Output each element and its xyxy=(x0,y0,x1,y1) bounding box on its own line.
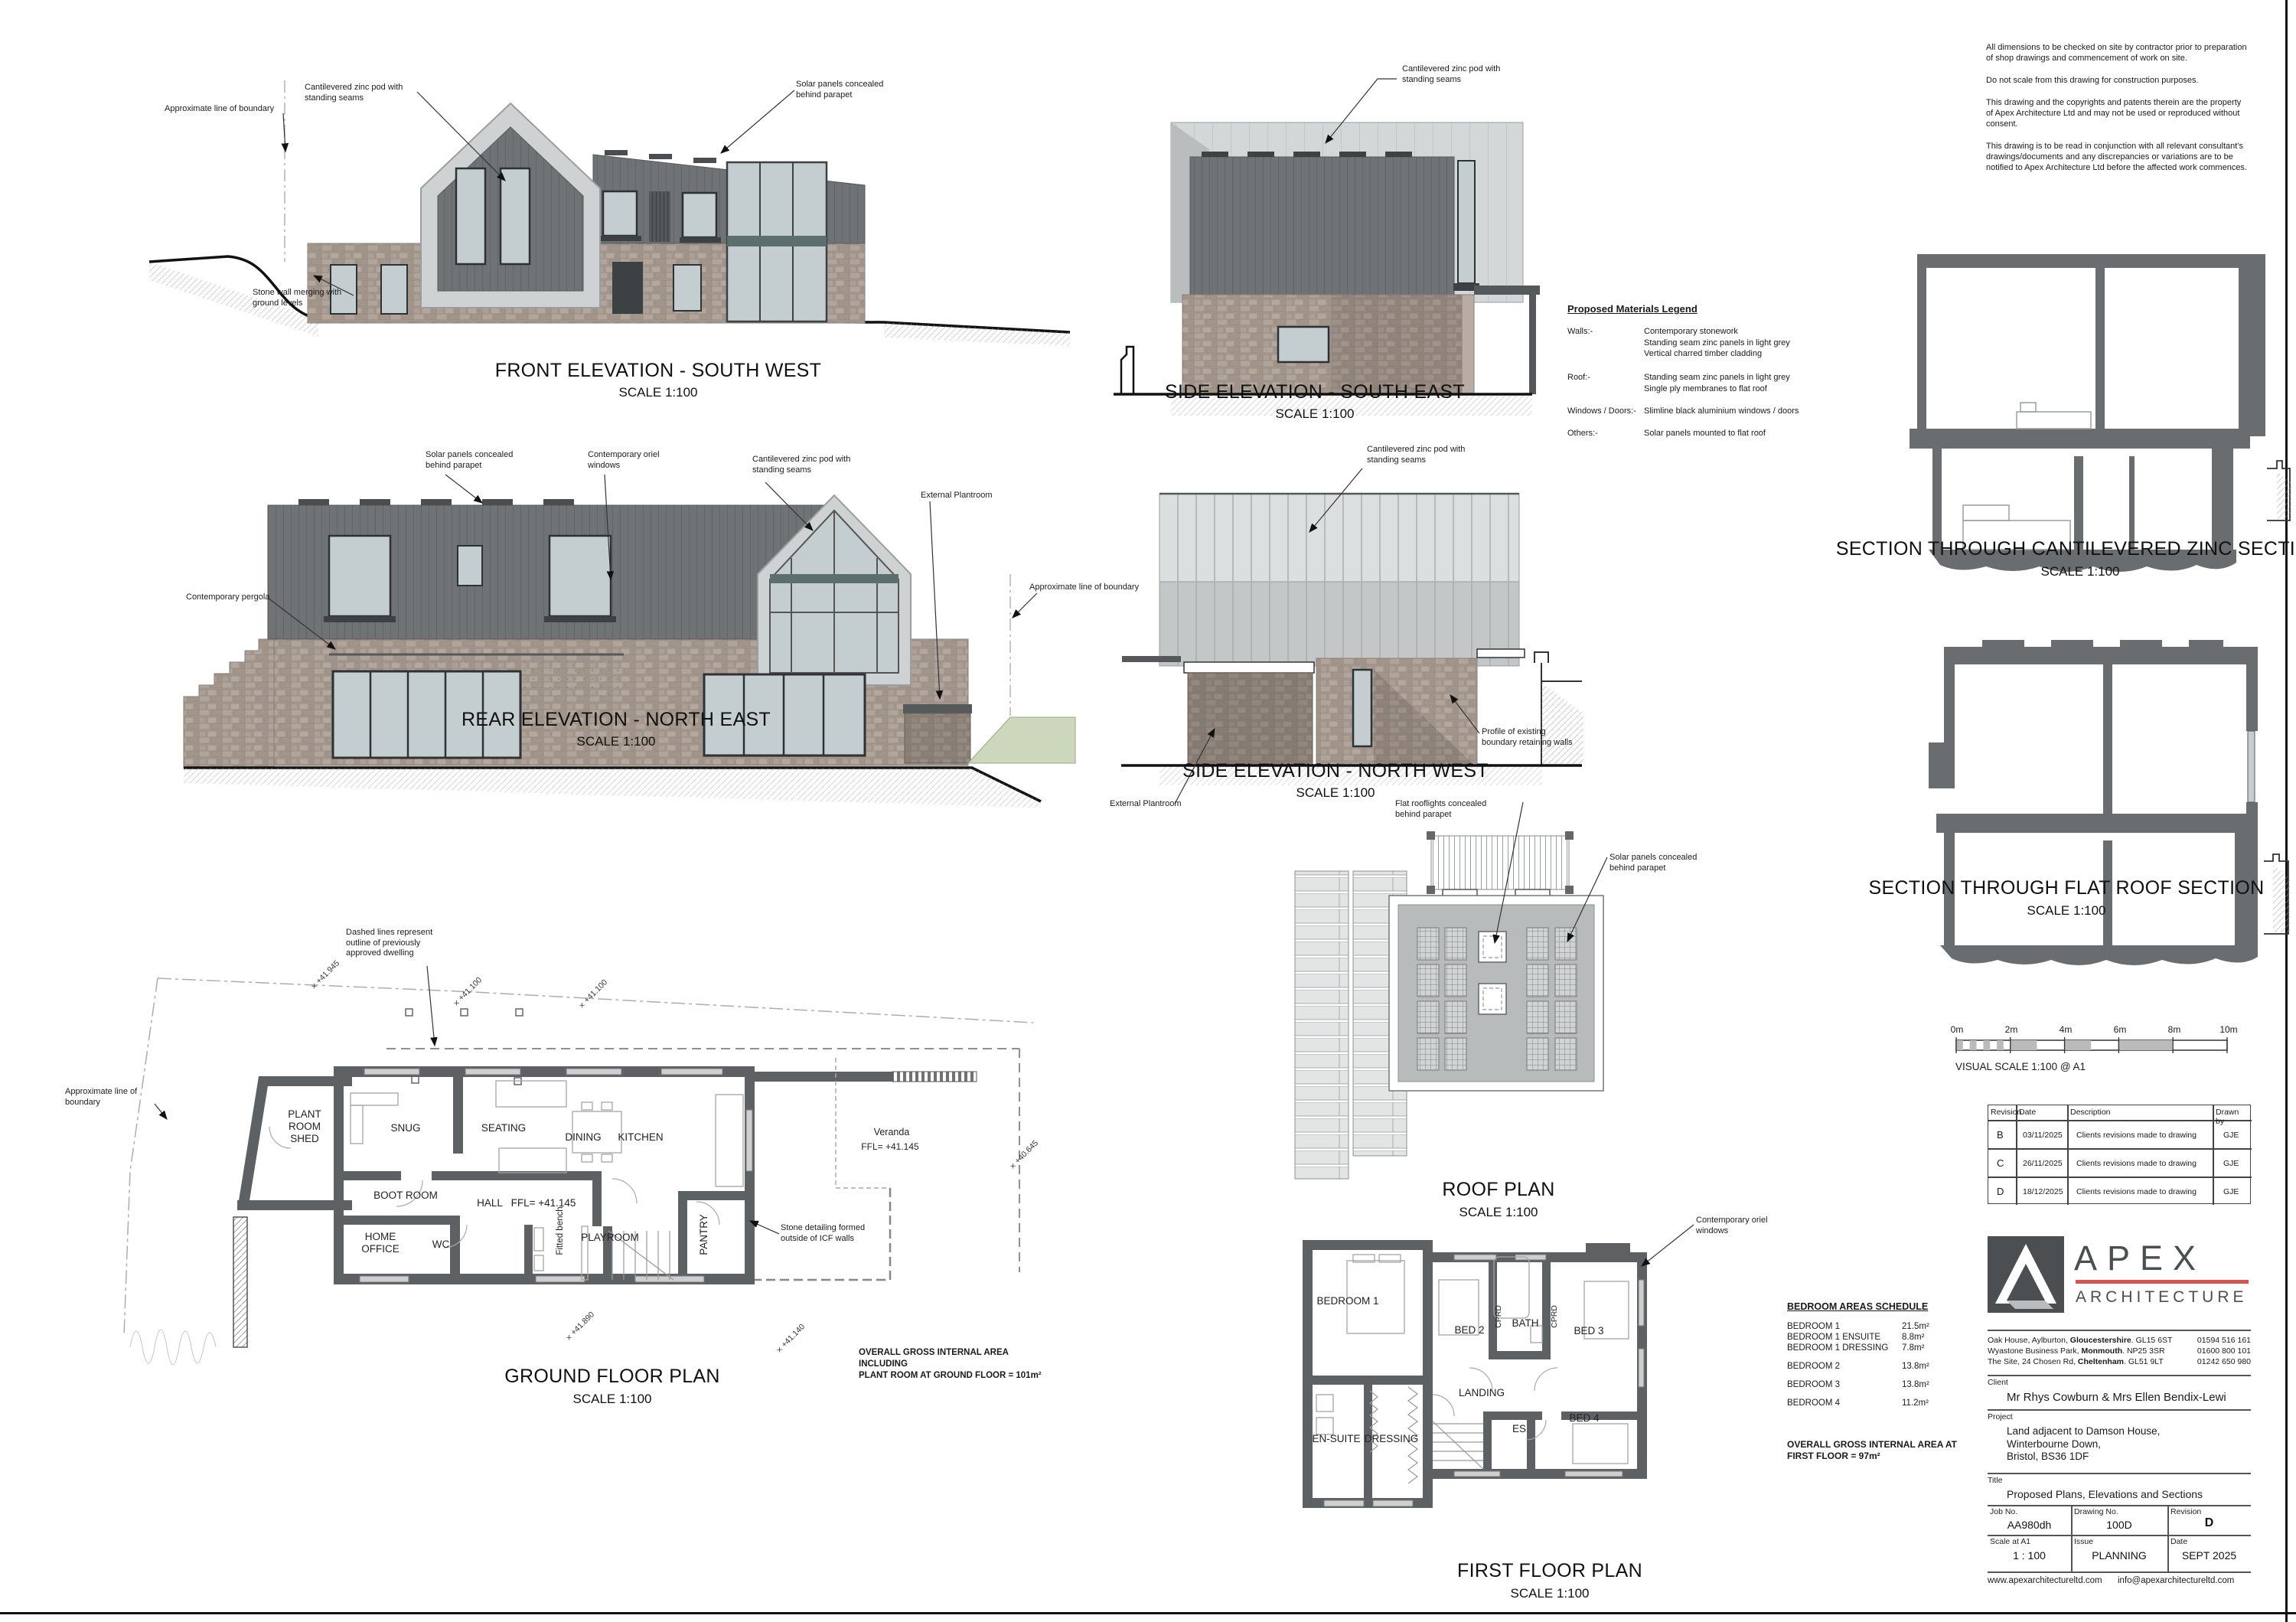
phone-3: 01242 650 980 xyxy=(2174,1357,2251,1368)
note-1: All dimensions to be checked on site by … xyxy=(1986,42,2250,64)
furniture-outlines xyxy=(1963,403,2091,550)
side-nw-title: SIDE ELEVATION - NORTH WEST xyxy=(1068,760,1603,782)
rev-1-by: GJE xyxy=(2221,1157,2241,1170)
vs-tick-5: 10m xyxy=(2213,1024,2244,1035)
sidese-ann-pod: Cantilevered zinc pod with standing seam… xyxy=(1402,64,1500,85)
title-block: APEX ARCHITECTURE Oak House, Aylburton, … xyxy=(1988,1232,2251,1592)
brand-sub-name: ARCHITECTURE xyxy=(2076,1288,2248,1307)
address-line-2: Wyastone Business Park, Monmouth. NP25 3… xyxy=(1988,1346,2165,1357)
section-walls xyxy=(1929,640,2258,948)
existing-roof-strip-1 xyxy=(1295,871,1349,1179)
stairs xyxy=(1433,1421,1483,1469)
front-elevation-scale: SCALE 1:100 xyxy=(390,385,926,400)
ground-slab xyxy=(1940,945,2258,965)
rev-header-by: Drawn by xyxy=(2213,1106,2250,1128)
sched-label-3: BEDROOM 2 xyxy=(1787,1362,1840,1371)
sidenw-ann-retaining: Profile of existing boundary retaining w… xyxy=(1482,727,1573,748)
rear-ann-pergola: Contemporary pergola xyxy=(186,592,269,603)
rear-elevation-title: REAR ELEVATION - NORTH EAST xyxy=(348,709,884,731)
solar-panel-tabs xyxy=(298,499,574,505)
rear-ann-plantroom: External Plantroom xyxy=(921,491,993,501)
room-dressing: DRESSING xyxy=(1349,1433,1433,1445)
roof-plan-drawing xyxy=(1286,781,1615,1194)
rev-1-date: 26/11/2025 xyxy=(2020,1157,2065,1170)
materials-legend: Proposed Materials Legend Walls:- Contem… xyxy=(1567,303,1866,315)
ground-ann-dashed: Dashed lines represent outline of previo… xyxy=(346,928,432,959)
email-text: info@apexarchitectureltd.com xyxy=(2118,1576,2234,1585)
room-snug: SNUG xyxy=(364,1122,448,1134)
rev-0-desc: Clients revisions made to drawing xyxy=(2074,1129,2199,1141)
rear-ann-solar: Solar panels concealed behind parapet xyxy=(426,450,513,471)
rear-elevation-scale: SCALE 1:100 xyxy=(348,734,884,749)
room-bedroom1: BEDROOM 1 xyxy=(1306,1295,1390,1307)
vs-tick-4: 8m xyxy=(2159,1024,2190,1035)
room-wc: WC xyxy=(399,1239,483,1251)
front-ann-solar: Solar panels concealed behind parapet xyxy=(796,80,883,100)
website-text: www.apexarchitectureltd.com xyxy=(1988,1576,2102,1585)
scale-label: Scale at A1 xyxy=(1990,1537,2030,1546)
rev-2-date: 18/12/2025 xyxy=(2020,1186,2066,1198)
ground-ann-boundary: Approximate line of boundary xyxy=(65,1087,157,1108)
front-elevation-drawing xyxy=(138,38,1094,390)
sched-area-5: 11.2m² xyxy=(1902,1398,1929,1408)
section-flat-scale: SCALE 1:100 xyxy=(1799,903,2296,919)
vs-tick-3: 6m xyxy=(2105,1024,2135,1035)
section-zinc-scale: SCALE 1:100 xyxy=(1812,564,2296,579)
drawing-sheet: Cantilevered zinc pod with standing seam… xyxy=(0,0,2296,1622)
general-notes: All dimensions to be checked on site by … xyxy=(1986,42,2250,184)
apex-logo-icon xyxy=(1988,1236,2064,1313)
front-ann-pod: Cantilevered zinc pod with standing seam… xyxy=(305,83,403,103)
external-plantroom xyxy=(903,704,972,763)
section-flat-title: SECTION THROUGH FLAT ROOF SECTION xyxy=(1799,877,2296,899)
ground-plan-scale: SCALE 1:100 xyxy=(344,1392,880,1407)
sched-area-0: 21.5m² xyxy=(1902,1322,1929,1331)
room-fitted-bench: Fitted bench xyxy=(554,1189,566,1273)
two-storey-glazing xyxy=(727,162,827,321)
front-elevation-title: FRONT ELEVATION - SOUTH WEST xyxy=(390,360,926,382)
first-ann-oriel: Contemporary oriel windows xyxy=(1696,1216,1768,1236)
drawing-title-text: Proposed Plans, Elevations and Sections xyxy=(2007,1488,2203,1500)
job-no-label: Job No. xyxy=(1990,1507,2017,1516)
grass-bank xyxy=(968,717,1075,763)
sched-label-0: BEDROOM 1 xyxy=(1787,1322,1840,1331)
rear-ann-oriel: Contemporary oriel windows xyxy=(588,450,660,471)
parapet-cap-left xyxy=(1122,656,1181,662)
phone-2: 01600 800 101 xyxy=(2174,1346,2251,1357)
address-line-3: The Site, 24 Chosen Rd, Cheltenham. GL51… xyxy=(1988,1357,2164,1368)
legend-key-windows: Windows / Doors:- xyxy=(1567,406,1636,417)
room-bed3: BED 3 xyxy=(1547,1325,1631,1337)
side-se-scale: SCALE 1:100 xyxy=(1047,406,1583,422)
vs-tick-1: 2m xyxy=(1996,1024,2027,1035)
room-seating: SEATING xyxy=(461,1122,546,1134)
address-line-1: Oak House, Aylburton, Gloucestershire. G… xyxy=(1988,1336,2172,1346)
vs-tick-0: 0m xyxy=(1942,1024,1972,1035)
date-label: Date xyxy=(2170,1537,2187,1546)
rear-ann-pod: Cantilevered zinc pod with standing seam… xyxy=(752,455,850,475)
room-playroom: PLAYROOM xyxy=(568,1232,652,1244)
stone-lower xyxy=(1182,295,1474,394)
note-4: This drawing is to be read in conjunctio… xyxy=(1986,141,2250,173)
room-veranda-ffl: FFL= +41.145 xyxy=(837,1141,944,1153)
schedule-title: BEDROOM AREAS SCHEDULE xyxy=(1787,1301,1986,1312)
fence-wall xyxy=(892,1072,977,1082)
materials-legend-title: Proposed Materials Legend xyxy=(1567,303,1866,315)
sidenw-ann-plantroom: External Plantroom xyxy=(1110,799,1182,810)
sched-area-4: 13.8m² xyxy=(1902,1380,1929,1389)
note-2: Do not scale from this drawing for const… xyxy=(1986,75,2250,86)
rev-2-desc: Clients revisions made to drawing xyxy=(2074,1186,2199,1198)
sched-area-3: 13.8m² xyxy=(1902,1362,1929,1371)
veranda-dashed xyxy=(755,1058,890,1280)
client-name: Mr Rhys Cowburn & Mrs Ellen Bendix-Lewi xyxy=(2007,1391,2226,1404)
note-3: This drawing and the copyrights and pate… xyxy=(1986,97,2250,129)
rev-2-letter: D xyxy=(1994,1184,2006,1199)
sched-label-2: BEDROOM 1 DRESSING xyxy=(1787,1343,1888,1353)
narrow-window xyxy=(1453,161,1479,291)
legend-key-others: Others:- xyxy=(1567,428,1598,439)
legend-key-roof: Roof:- xyxy=(1567,372,1590,383)
leader-line xyxy=(1642,1225,1694,1266)
project-label: Project xyxy=(1988,1412,2013,1421)
legend-key-walls: Walls:- xyxy=(1567,326,1593,338)
room-pantry: PANTRY xyxy=(698,1193,710,1277)
parapet-cap-right xyxy=(1477,649,1525,658)
sidenw-ann-pod: Cantilevered zinc pod with standing seam… xyxy=(1367,445,1465,465)
ground-ann-icf: Stone detailing formed outside of ICF wa… xyxy=(781,1223,865,1244)
rev-header-date: Date xyxy=(2017,1106,2038,1118)
room-bed4: BED 4 xyxy=(1542,1412,1626,1425)
front-ann-stone-wall: Stone wall merging with ground levels xyxy=(253,288,341,308)
rev-1-letter: C xyxy=(1994,1156,2006,1170)
sched-label-1: BEDROOM 1 ENSUITE xyxy=(1787,1333,1880,1342)
upper-window xyxy=(2248,731,2255,802)
room-landing: LANDING xyxy=(1440,1387,1524,1399)
client-label: Client xyxy=(1988,1378,2008,1387)
section-zinc-title: SECTION THROUGH CANTILEVERED ZINC SECTIO… xyxy=(1812,538,2296,560)
revision-label: Revision xyxy=(2170,1507,2201,1516)
rev-0-date: 03/11/2025 xyxy=(2020,1129,2065,1141)
schedule-total: OVERALL GROSS INTERNAL AREA AT FIRST FLO… xyxy=(1787,1439,1957,1462)
room-plant-shed: PLANT ROOM SHED xyxy=(263,1108,347,1145)
rev-2-by: GJE xyxy=(2221,1186,2241,1198)
room-cprd-2: CPRD xyxy=(1548,1274,1561,1359)
rev-0-by: GJE xyxy=(2221,1129,2241,1141)
side-se-title: SIDE ELEVATION - SOUTH EAST xyxy=(1047,381,1583,403)
roof-plan-title: ROOF PLAN xyxy=(1231,1179,1766,1201)
revision-value: D xyxy=(2167,1516,2251,1530)
sched-label-4: BEDROOM 3 xyxy=(1787,1380,1840,1389)
room-boot: BOOT ROOM xyxy=(364,1190,448,1202)
brand-name: APEX xyxy=(2074,1239,2206,1278)
first-plan-title: FIRST FLOOR PLAN xyxy=(1282,1560,1818,1582)
rev-header-desc: Description xyxy=(2068,1106,2113,1118)
first-floor-plan-drawing xyxy=(1293,1211,1814,1594)
ground-plan-title: GROUND FLOOR PLAN xyxy=(344,1366,880,1388)
pergola-top xyxy=(1427,831,1574,899)
rev-1-desc: Clients revisions made to drawing xyxy=(2074,1157,2199,1170)
zinc-dark-band xyxy=(1190,157,1454,295)
job-no-value: AA980dh xyxy=(1988,1519,2071,1531)
bedroom-areas-schedule: BEDROOM AREAS SCHEDULE BEDROOM 121.5m² B… xyxy=(1787,1301,1986,1312)
zinc-pod-upper xyxy=(1159,494,1519,582)
first-plan-scale: SCALE 1:100 xyxy=(1282,1586,1818,1601)
ground-area-note: OVERALL GROSS INTERNAL AREA INCLUDING PL… xyxy=(859,1347,1058,1382)
front-ann-boundary: Approximate line of boundary xyxy=(165,104,279,115)
visual-scale-caption: VISUAL SCALE 1:100 @ A1 xyxy=(1955,1061,2086,1072)
drawing-no-value: 100D xyxy=(2071,1519,2167,1531)
sched-area-1: 8.8m² xyxy=(1902,1333,1924,1342)
stepped-stone-wall xyxy=(184,639,274,768)
project-text: Land adjacent to Damson House, Winterbou… xyxy=(2007,1425,2160,1464)
sched-area-2: 7.8m² xyxy=(1902,1343,1924,1353)
vs-tick-2: 4m xyxy=(2050,1024,2081,1035)
upper-windows xyxy=(600,191,721,243)
scale-bar-graphic xyxy=(1955,1037,2231,1054)
drawing-title-label: Title xyxy=(1988,1476,2002,1485)
room-es: ES xyxy=(1477,1423,1561,1435)
room-hall-ffl: FFL= +41.145 xyxy=(494,1197,593,1209)
scale-value: 1 : 100 xyxy=(1988,1549,2071,1562)
room-kitchen: KITCHEN xyxy=(598,1131,683,1144)
room-cprd-1: CPRD xyxy=(1492,1274,1505,1359)
gabled-zinc-pod xyxy=(421,103,600,308)
roof-ann-rooflights: Flat rooflights concealed behind parapet xyxy=(1395,799,1486,820)
hatched-wall-left xyxy=(130,1217,247,1365)
room-veranda: Veranda xyxy=(850,1126,934,1138)
stone-centre xyxy=(1316,658,1477,765)
legend-val-roof: Standing seam zinc panels in light grey … xyxy=(1644,372,1790,394)
phone-1: 01594 516 161 xyxy=(2174,1336,2251,1346)
issue-value: PLANNING xyxy=(2071,1549,2167,1562)
legend-val-windows: Slimline black aluminium windows / doors xyxy=(1644,406,1799,417)
legend-val-others: Solar panels mounted to flat roof xyxy=(1644,428,1766,439)
brand-red-rule xyxy=(2076,1280,2249,1284)
side-nw-elevation-drawing xyxy=(1114,452,1588,811)
legend-val-walls: Contemporary stonework Standing seam zin… xyxy=(1644,326,1790,360)
sched-label-5: BEDROOM 4 xyxy=(1787,1398,1840,1408)
rev-0-letter: B xyxy=(1994,1128,2006,1142)
section-zinc-drawing xyxy=(1890,245,2296,551)
revision-table: Revision Date Description Drawn by B 03/… xyxy=(1988,1105,2251,1204)
side-se-elevation-drawing xyxy=(1102,57,1546,425)
date-value: SEPT 2025 xyxy=(2167,1549,2251,1562)
zinc-pod-lower xyxy=(1159,582,1519,666)
drawing-no-label: Drawing No. xyxy=(2074,1507,2118,1516)
retaining-hatch xyxy=(1541,683,1583,764)
ground-line xyxy=(184,768,1041,808)
sheet-border-bottom xyxy=(0,1612,2296,1614)
issue-label: Issue xyxy=(2074,1537,2093,1546)
roof-ann-solar: Solar panels concealed behind parapet xyxy=(1609,853,1697,873)
